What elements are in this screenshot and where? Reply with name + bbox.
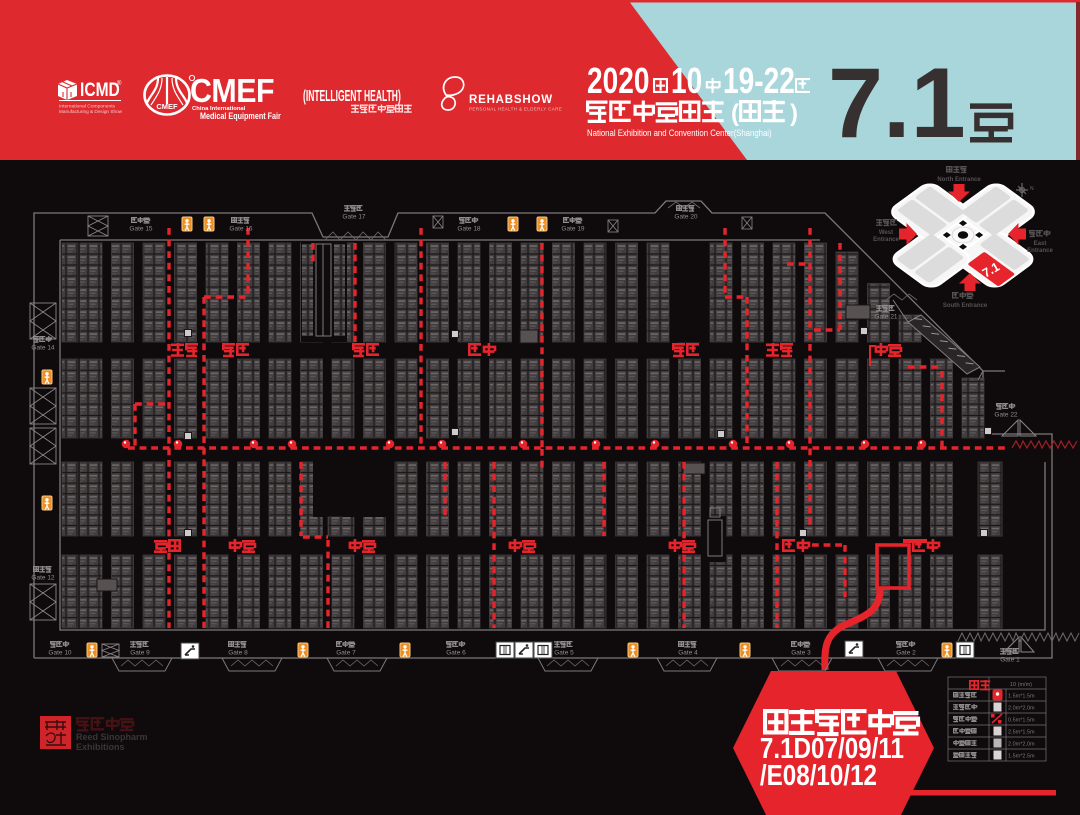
svg-text:Gate 7: Gate 7	[336, 650, 356, 657]
svg-text:West: West	[879, 230, 893, 236]
svg-text:Gate 20: Gate 20	[674, 214, 698, 221]
svg-text:Gate 16: Gate 16	[229, 226, 253, 233]
svg-text:REHABSHOW: REHABSHOW	[469, 94, 553, 106]
svg-text:10 (m/m): 10 (m/m)	[1010, 682, 1032, 688]
svg-text:2020: 2020	[587, 61, 649, 101]
svg-text:Gate 18: Gate 18	[457, 226, 481, 233]
svg-text:Gate 2: Gate 2	[896, 650, 916, 657]
svg-text:Gate 9: Gate 9	[130, 650, 150, 657]
svg-text:2.5m*1.5m: 2.5m*1.5m	[1008, 730, 1035, 736]
svg-text:Gate 3: Gate 3	[791, 650, 811, 657]
svg-text:1.5m*2.5m: 1.5m*2.5m	[1008, 754, 1035, 760]
svg-text:(: (	[731, 100, 739, 127]
svg-text:N: N	[1030, 186, 1034, 192]
svg-text:7.1: 7.1	[828, 47, 966, 158]
svg-text:Reed Sinopharm: Reed Sinopharm	[76, 732, 148, 742]
svg-text:PERSONAL HEALTH & ELDERLY CARE: PERSONAL HEALTH & ELDERLY CARE	[469, 107, 562, 112]
svg-text:ICMD: ICMD	[80, 79, 120, 101]
svg-text:Gate 12: Gate 12	[31, 575, 55, 582]
svg-text:0.5m*1.5m: 0.5m*1.5m	[1008, 718, 1035, 724]
svg-text:East: East	[1034, 241, 1047, 247]
svg-text:Gate 4: Gate 4	[678, 650, 698, 657]
svg-text:Entrance: Entrance	[1027, 248, 1053, 254]
svg-text:Gate 19: Gate 19	[561, 226, 585, 233]
svg-text:®: ®	[117, 80, 122, 87]
svg-text:Gate 14: Gate 14	[31, 345, 55, 352]
svg-text:19-22: 19-22	[723, 61, 795, 101]
svg-text:Gate 8: Gate 8	[228, 650, 248, 657]
svg-text:Manufacturing & Design Show: Manufacturing & Design Show	[59, 109, 123, 114]
svg-text:2.0m*2.0m: 2.0m*2.0m	[1008, 742, 1035, 748]
svg-text:Gate 21: Gate 21	[874, 314, 898, 321]
svg-text:/E08/10/12: /E08/10/12	[760, 759, 877, 791]
svg-text:Entrance: Entrance	[873, 237, 899, 243]
svg-text:Exhibitions: Exhibitions	[76, 742, 125, 752]
svg-text:National Exhibition and Conven: National Exhibition and Convention Cente…	[587, 127, 772, 138]
svg-text:2.0m*2.0m: 2.0m*2.0m	[1008, 706, 1035, 712]
svg-text:): )	[790, 100, 798, 127]
svg-text:Gate 15: Gate 15	[129, 226, 153, 233]
svg-text:South Entrance: South Entrance	[943, 303, 988, 309]
svg-text:Gate 17: Gate 17	[342, 214, 366, 221]
svg-text:CMEF: CMEF	[190, 72, 274, 109]
svg-text:(INTELLIGENT HEALTH): (INTELLIGENT HEALTH)	[303, 87, 401, 104]
svg-text:North Entrance: North Entrance	[937, 177, 981, 183]
svg-text:Gate 6: Gate 6	[446, 650, 466, 657]
svg-text:Medical Equipment Fair: Medical Equipment Fair	[200, 111, 281, 121]
svg-text:Gate 5: Gate 5	[554, 650, 574, 657]
svg-text:Gate 1: Gate 1	[1000, 657, 1020, 664]
svg-text:CMEF: CMEF	[156, 102, 178, 111]
svg-text:1.5m*1.5m: 1.5m*1.5m	[1008, 694, 1035, 700]
svg-text:10: 10	[671, 61, 702, 101]
svg-text:Gate 10: Gate 10	[48, 650, 72, 657]
svg-text:Gate 22: Gate 22	[994, 412, 1018, 419]
